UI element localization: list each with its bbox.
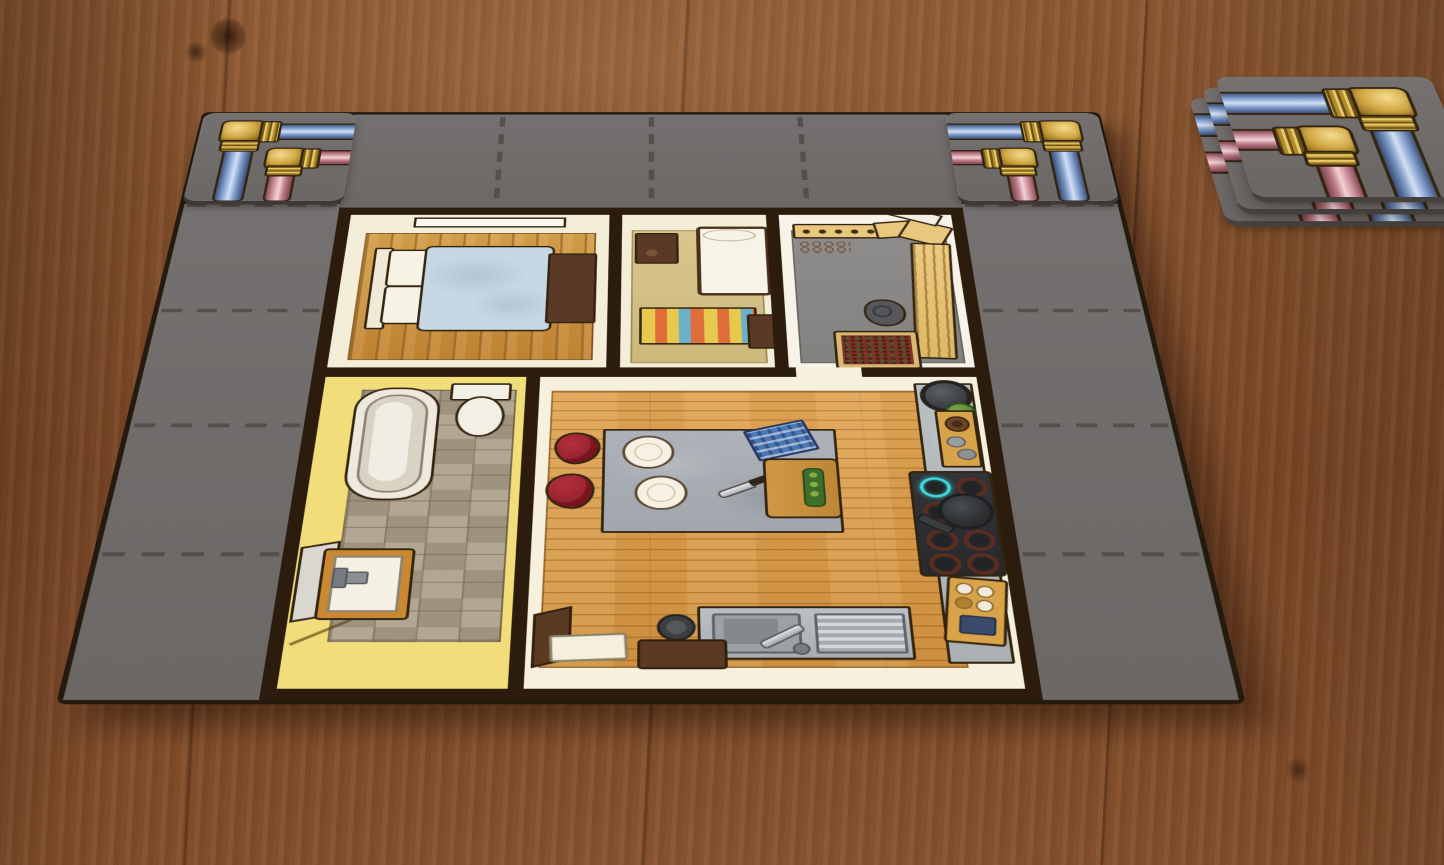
- tabletop-scene: { "scene": { "type": "digital-board-game…: [0, 0, 1444, 865]
- white-mat: [549, 633, 629, 663]
- draw-pile[interactable]: [1183, 77, 1444, 225]
- plate: [634, 476, 687, 510]
- burner: [962, 530, 997, 551]
- egg: [975, 599, 994, 613]
- window: [413, 218, 566, 228]
- brass-nut: [218, 140, 261, 152]
- burner: [925, 530, 959, 551]
- draw-pile-top-tile[interactable]: [1215, 77, 1444, 197]
- drying-rack: [814, 613, 909, 653]
- hallway: [779, 215, 975, 368]
- kitchen-living: [524, 377, 1026, 689]
- brass-nut: [1041, 140, 1084, 152]
- doormat: [836, 332, 920, 367]
- grid-dash: [133, 423, 300, 427]
- bathtub: [341, 388, 442, 501]
- cucumber: [802, 468, 827, 507]
- pipe-tile-top-left[interactable]: [183, 113, 357, 201]
- shoe-marks: [798, 241, 851, 253]
- brass-nut: [264, 165, 304, 176]
- grid-dash: [965, 204, 1115, 207]
- egg: [976, 585, 995, 599]
- egg-slot: [954, 596, 973, 610]
- foot-chest: [545, 253, 598, 323]
- bed-duvet: [416, 246, 556, 331]
- cutting-board: [763, 458, 844, 518]
- dresser-knob: [646, 250, 657, 257]
- blue-box: [959, 615, 997, 637]
- pipe-art: [945, 113, 1119, 201]
- stool: [747, 314, 775, 348]
- brass-nut: [1301, 151, 1361, 167]
- table-plane: [0, 54, 1444, 700]
- kids-room: [620, 215, 775, 368]
- garlic: [946, 436, 967, 447]
- brass-nut: [257, 121, 283, 142]
- veg-board: [934, 410, 983, 467]
- burner: [928, 553, 963, 574]
- striped-rug: [639, 307, 758, 344]
- bedroom: [327, 215, 609, 368]
- brass-nut: [998, 165, 1038, 176]
- house-board: [259, 208, 1043, 700]
- egg-tray: [944, 576, 1009, 647]
- game-board: [63, 115, 1239, 700]
- bag-detail: [872, 305, 893, 317]
- grid-dash: [649, 117, 655, 205]
- avocado: [944, 416, 971, 432]
- dresser: [635, 233, 679, 264]
- plate: [622, 436, 674, 469]
- burner: [966, 553, 1001, 574]
- faucet-base: [793, 643, 811, 655]
- shoe-shelf: [792, 224, 882, 239]
- pipe-tile-top-right[interactable]: [945, 113, 1119, 201]
- egg: [955, 582, 974, 596]
- brass-nut: [1019, 121, 1045, 142]
- garlic: [956, 449, 977, 460]
- faucet-handle: [331, 568, 349, 588]
- pet-bowl: [657, 614, 696, 641]
- bathroom: [277, 377, 527, 689]
- pipe-art: [183, 113, 355, 199]
- grid-dash: [102, 552, 279, 556]
- grid-dash: [982, 309, 1140, 312]
- grid-dash: [1023, 552, 1200, 556]
- grid-dash: [161, 309, 319, 312]
- burner-lit: [919, 477, 953, 497]
- wardrobe: [910, 243, 958, 360]
- brass-nut: [1357, 115, 1421, 132]
- door-opening: [796, 367, 862, 376]
- sink-unit: [697, 606, 916, 659]
- brown-mat: [637, 639, 728, 669]
- grid-dash: [187, 204, 337, 207]
- grid-dash: [1001, 423, 1168, 427]
- kids-pillow: [702, 229, 756, 241]
